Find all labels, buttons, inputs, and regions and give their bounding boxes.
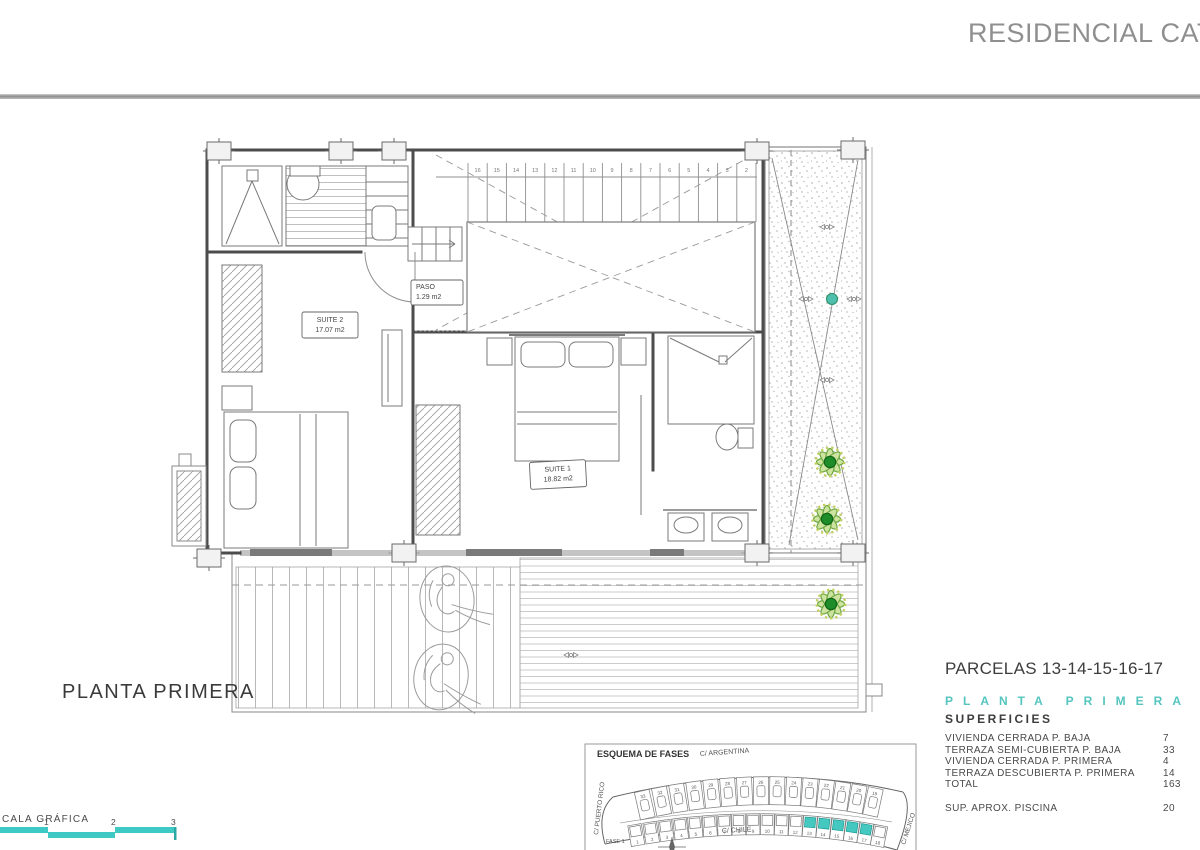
row-label: TERRAZA DESCUBIERTA P. PRIMERA bbox=[945, 768, 1135, 779]
site-parcel: 14 bbox=[816, 816, 832, 838]
closet bbox=[416, 405, 460, 535]
stair-tread-number: 15 bbox=[494, 168, 500, 174]
room-label-suite1: SUITE 1 18.82 m2 bbox=[529, 460, 586, 490]
site-parcel: 27 bbox=[737, 777, 753, 806]
site-parcel: 2 bbox=[643, 821, 660, 844]
surfaces-table: VIVIENDA CERRADA P. BAJA 7 TERRAZA SEMI-… bbox=[945, 733, 1200, 791]
site-parcel: 29 bbox=[703, 779, 721, 808]
shower-tray bbox=[222, 166, 282, 246]
stair-tread-number: 8 bbox=[630, 168, 633, 174]
stair-tread-number: 5 bbox=[687, 168, 690, 174]
deck-connector bbox=[866, 684, 882, 696]
svg-text:10: 10 bbox=[765, 829, 771, 834]
suite1-room bbox=[416, 335, 757, 541]
header-divider bbox=[0, 94, 1200, 99]
svg-text:28: 28 bbox=[725, 781, 731, 786]
pool-value: 20 bbox=[1163, 803, 1175, 814]
shrub-marker bbox=[827, 294, 838, 305]
room-label-paso: PASO 1.29 m2 bbox=[411, 280, 463, 305]
toilet-ensuite bbox=[716, 424, 738, 450]
stair-tread-number: 7 bbox=[649, 168, 652, 174]
stair-tread-number: 6 bbox=[668, 168, 671, 174]
bed-suite1 bbox=[515, 337, 619, 461]
site-parcel: 12 bbox=[788, 815, 803, 837]
project-title: RESIDENCIAL CATAL bbox=[968, 18, 1200, 49]
room-area: 1.29 m2 bbox=[416, 294, 441, 301]
deck-terrace bbox=[232, 553, 882, 717]
site-parcel: 25 bbox=[769, 777, 785, 805]
room-name: SUITE 2 bbox=[317, 317, 344, 324]
svg-text:27: 27 bbox=[742, 780, 748, 785]
row-label: VIVIENDA CERRADA P. PRIMERA bbox=[945, 756, 1112, 767]
row-label: VIVIENDA CERRADA P. BAJA bbox=[945, 733, 1091, 744]
row-value: 14 bbox=[1163, 768, 1175, 779]
stair-tread-number: 11 bbox=[571, 168, 577, 174]
site-parcel: 23 bbox=[801, 778, 818, 807]
svg-text:24: 24 bbox=[791, 780, 797, 785]
stair-tread-number: 2 bbox=[745, 168, 748, 174]
room-name: PASO bbox=[416, 284, 435, 291]
site-parcel: 28 bbox=[720, 778, 737, 807]
svg-text:26: 26 bbox=[758, 780, 764, 785]
shower-ensuite bbox=[668, 336, 754, 424]
stair-tread-number: 12 bbox=[551, 168, 557, 174]
table-row: TOTAL 163 bbox=[945, 779, 1200, 791]
row-value: 33 bbox=[1163, 745, 1175, 756]
parcels-title: PARCELAS 13-14-15-16-17 bbox=[945, 659, 1163, 679]
site-parcel: 30 bbox=[686, 781, 705, 811]
stair-tread-number: 14 bbox=[513, 168, 519, 174]
room-label-suite2: SUITE 2 17.07 m2 bbox=[302, 312, 358, 338]
stair-tread-number: 10 bbox=[590, 168, 596, 174]
row-value: 4 bbox=[1163, 756, 1169, 767]
svg-text:13: 13 bbox=[806, 831, 812, 836]
wardrobe bbox=[222, 265, 262, 372]
planter-left bbox=[172, 454, 206, 546]
scale-tick: 2 bbox=[111, 817, 116, 827]
pool-label: SUP. APROX. PISCINA bbox=[945, 803, 1057, 814]
site-parcel: 22 bbox=[816, 779, 834, 809]
nightstand bbox=[621, 338, 646, 365]
scale-tick: 3 bbox=[171, 817, 176, 827]
graphic-scale: CALA GRÁFICA 1 2 3 bbox=[0, 812, 177, 840]
stair-tread-number: 9 bbox=[610, 168, 613, 174]
svg-text:11: 11 bbox=[779, 829, 784, 834]
row-label: TOTAL bbox=[945, 779, 978, 790]
site-parcel: 13 bbox=[802, 815, 817, 837]
surfaces-heading: SUPERFICIES bbox=[945, 712, 1053, 726]
floor-label-teal: PLANTA PRIMERA bbox=[945, 694, 1191, 708]
toilet bbox=[372, 206, 396, 240]
room-name: SUITE 1 bbox=[544, 465, 571, 473]
site-parcel: 4 bbox=[673, 817, 689, 839]
svg-text:25: 25 bbox=[775, 780, 781, 785]
pool-row: SUP. APROX. PISCINA 20 bbox=[945, 803, 1057, 814]
stair-tread-number: 16 bbox=[475, 168, 481, 174]
row-label: TERRAZA SEMI-CUBIERTA P. BAJA bbox=[945, 745, 1121, 756]
table-row: TERRAZA SEMI-CUBIERTA P. BAJA 33 bbox=[945, 745, 1200, 757]
nightstand bbox=[222, 386, 252, 410]
site-parcel: 6 bbox=[702, 815, 717, 837]
bed-suite2 bbox=[224, 412, 348, 548]
svg-text:23: 23 bbox=[807, 781, 813, 786]
row-value: 163 bbox=[1163, 779, 1181, 790]
scale-tick: 1 bbox=[44, 817, 49, 827]
row-value: 7 bbox=[1163, 733, 1169, 744]
floor-plan-title: PLANTA PRIMERA bbox=[62, 681, 255, 704]
site-parcel: 11 bbox=[774, 814, 788, 835]
bathroom-top bbox=[222, 166, 408, 246]
stair-void bbox=[467, 222, 755, 332]
dresser bbox=[382, 330, 402, 406]
stair-tread-number: 13 bbox=[532, 168, 538, 174]
site-map-title: ESQUEMA DE FASES bbox=[597, 749, 689, 759]
site-map: ESQUEMA DE FASES 33323130292827262524232… bbox=[585, 744, 917, 850]
table-row: VIVIENDA CERRADA P. BAJA 7 bbox=[945, 733, 1200, 745]
site-parcel: 26 bbox=[753, 777, 768, 805]
room-area: 17.07 m2 bbox=[315, 327, 344, 334]
site-parcel: 15 bbox=[830, 818, 846, 841]
site-parcel: 5 bbox=[688, 816, 703, 838]
table-row: TERRAZA DESCUBIERTA P. PRIMERA 14 bbox=[945, 768, 1200, 780]
site-parcel: 10 bbox=[760, 814, 774, 835]
nightstand bbox=[487, 338, 512, 365]
svg-text:12: 12 bbox=[793, 830, 799, 835]
phase-label: FASE 1 bbox=[606, 839, 625, 845]
staircase: 1615141312111098765432 bbox=[408, 155, 757, 332]
stair-tread-number: 4 bbox=[706, 168, 709, 174]
site-parcel: 24 bbox=[785, 777, 801, 806]
table-row: VIVIENDA CERRADA P. PRIMERA 4 bbox=[945, 756, 1200, 768]
